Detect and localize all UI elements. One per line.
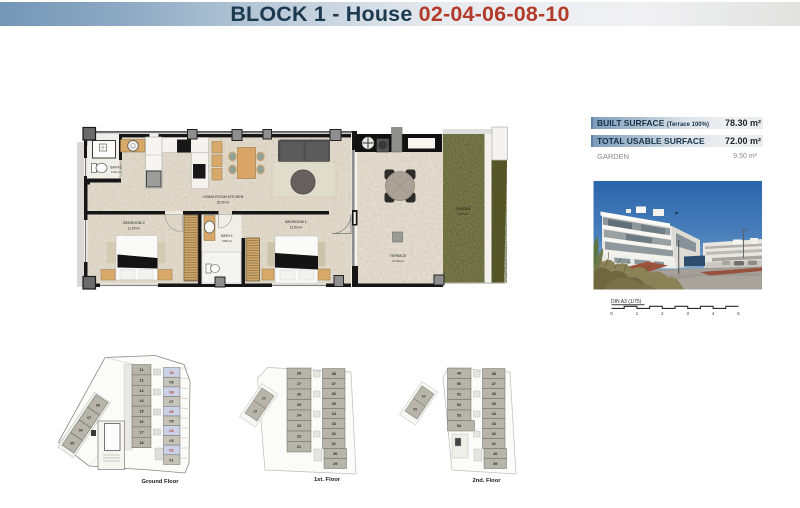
svg-text:4: 4	[712, 311, 715, 316]
svg-text:06: 06	[169, 410, 173, 414]
svg-text:25: 25	[297, 403, 301, 407]
svg-text:45: 45	[492, 402, 496, 406]
svg-text:38: 38	[332, 372, 336, 376]
svg-text:37: 37	[332, 382, 336, 386]
svg-text:17: 17	[139, 430, 143, 434]
svg-text:01: 01	[169, 458, 173, 462]
svg-text:08: 08	[169, 390, 173, 394]
svg-text:52: 52	[457, 403, 461, 407]
svg-text:05: 05	[70, 441, 74, 445]
svg-text:59: 59	[413, 407, 417, 411]
svg-text:35: 35	[332, 402, 336, 406]
svg-text:40: 40	[493, 452, 497, 456]
svg-text:BATH 1: BATH 1	[221, 234, 233, 238]
svg-text:BEDROOM 2: BEDROOM 2	[123, 221, 145, 225]
svg-text:10: 10	[169, 371, 173, 375]
svg-text:07: 07	[87, 416, 91, 420]
svg-text:19: 19	[253, 409, 257, 413]
svg-text:GARDEN: GARDEN	[456, 207, 471, 211]
svg-text:21: 21	[297, 445, 301, 449]
svg-text:11.00 m²: 11.00 m²	[290, 226, 302, 230]
svg-text:11: 11	[139, 368, 143, 372]
svg-text:BEDROOM 1: BEDROOM 1	[285, 220, 307, 224]
svg-text:32: 32	[332, 432, 336, 436]
svg-text:08: 08	[96, 403, 100, 407]
svg-text:60: 60	[422, 395, 426, 399]
svg-text:TERRACE: TERRACE	[390, 254, 407, 258]
svg-text:51: 51	[457, 393, 461, 397]
svg-text:27: 27	[297, 382, 301, 386]
svg-text:03: 03	[169, 439, 173, 443]
svg-text:46: 46	[492, 392, 496, 396]
svg-text:5: 5	[737, 311, 740, 316]
svg-text:30: 30	[333, 452, 337, 456]
svg-text:16: 16	[139, 420, 143, 424]
svg-text:3.80 m²: 3.80 m²	[222, 239, 232, 243]
svg-text:26.00 m²: 26.00 m²	[217, 201, 230, 205]
svg-text:05: 05	[169, 420, 173, 424]
svg-text:09: 09	[169, 381, 173, 385]
svg-text:31: 31	[332, 442, 336, 446]
svg-text:50: 50	[457, 382, 461, 386]
svg-text:2: 2	[661, 311, 664, 316]
svg-text:36: 36	[332, 392, 336, 396]
svg-text:22: 22	[297, 435, 301, 439]
svg-text:BATH 2: BATH 2	[110, 166, 122, 170]
svg-text:49: 49	[457, 372, 461, 376]
svg-text:17.00 m²: 17.00 m²	[392, 259, 404, 263]
svg-text:07: 07	[169, 400, 173, 404]
svg-text:53: 53	[457, 414, 461, 418]
svg-text:13: 13	[139, 389, 143, 393]
svg-text:42: 42	[492, 432, 496, 436]
svg-text:47: 47	[492, 382, 496, 386]
svg-text:28: 28	[297, 372, 301, 376]
svg-text:18: 18	[139, 441, 143, 445]
svg-text:20: 20	[262, 397, 266, 401]
svg-text:1: 1	[636, 311, 639, 316]
svg-text:3.20 m²: 3.20 m²	[111, 170, 121, 174]
svg-text:15: 15	[139, 410, 143, 414]
svg-text:29: 29	[333, 462, 337, 466]
svg-text:06: 06	[79, 429, 83, 433]
svg-text:43: 43	[492, 422, 496, 426]
svg-text:9.50 m²: 9.50 m²	[458, 212, 468, 216]
svg-text:39: 39	[493, 462, 497, 466]
svg-text:0: 0	[610, 311, 613, 316]
svg-text:11.00 m²: 11.00 m²	[128, 227, 140, 231]
svg-text:02: 02	[169, 449, 173, 453]
svg-text:3: 3	[687, 311, 690, 316]
svg-text:41: 41	[492, 442, 496, 446]
svg-text:26: 26	[297, 393, 301, 397]
svg-text:23: 23	[297, 424, 301, 428]
svg-text:12: 12	[139, 378, 143, 382]
svg-text:48: 48	[492, 372, 496, 376]
svg-text:LIVING ROOM KITCHEN: LIVING ROOM KITCHEN	[203, 195, 244, 199]
svg-text:33: 33	[332, 422, 336, 426]
